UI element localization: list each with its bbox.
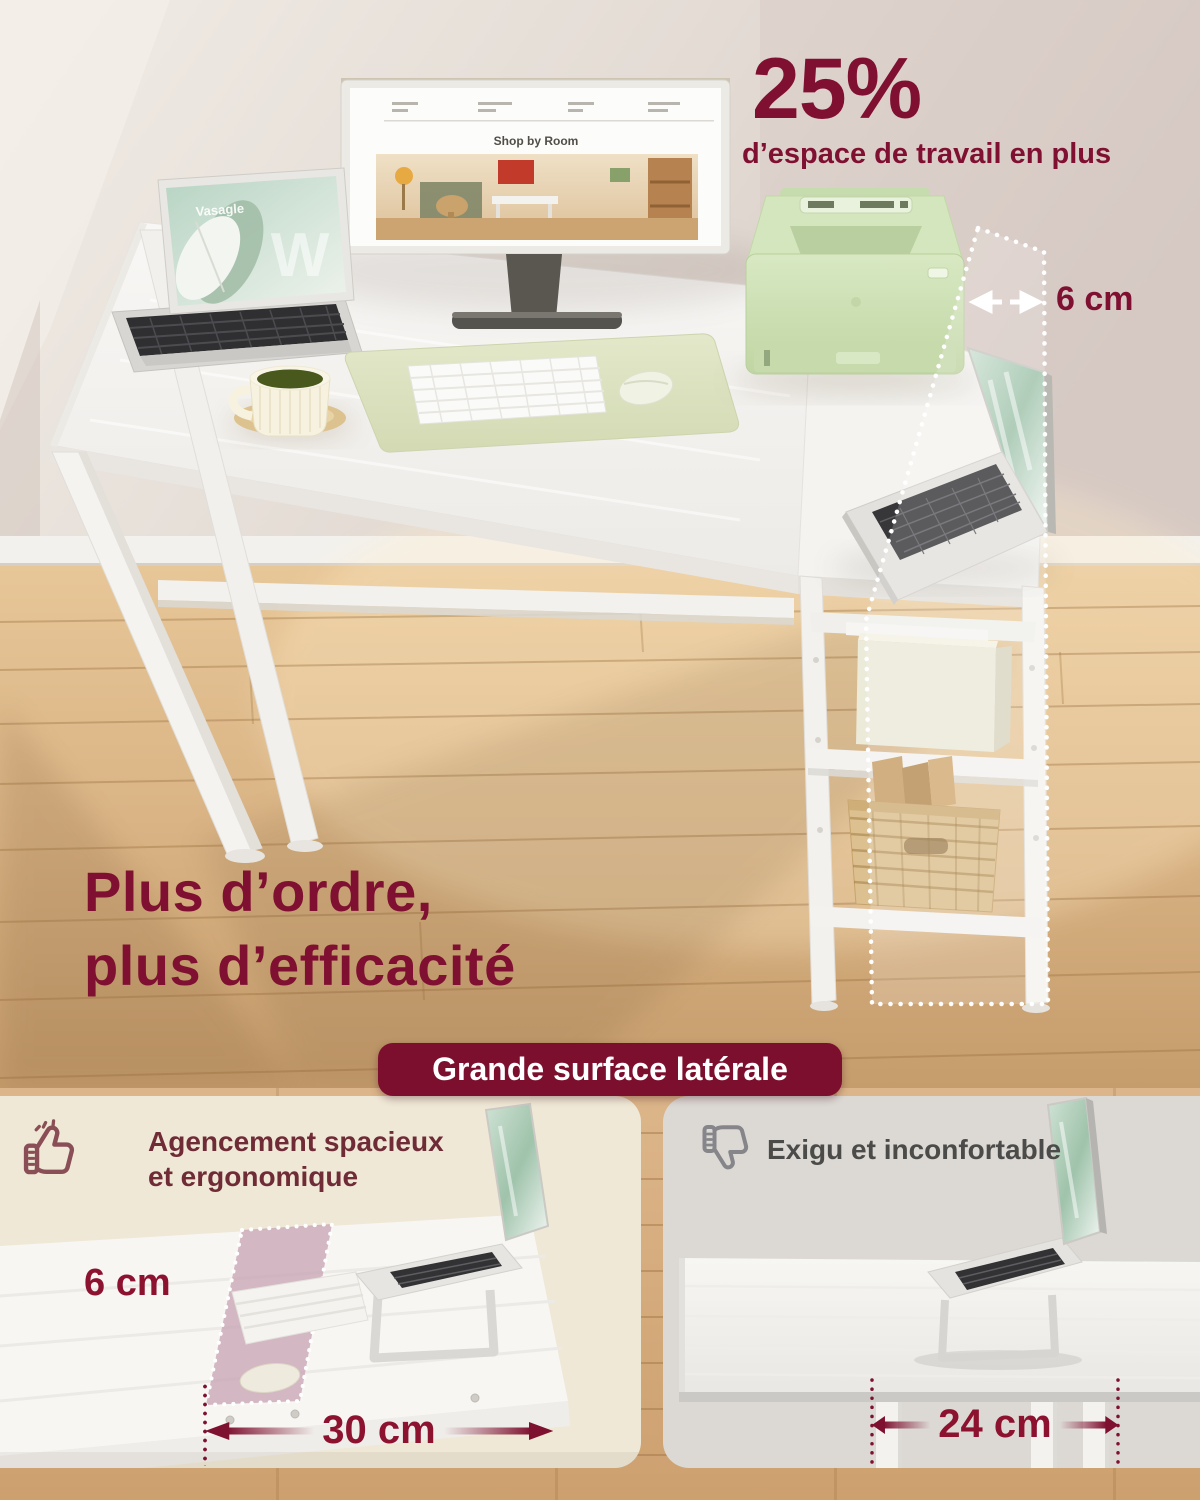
monitor-heading: Shop by Room	[494, 134, 579, 148]
good-depth-label: 6 cm	[84, 1262, 171, 1305]
bad-width-measure: 24 cm	[872, 1402, 1118, 1447]
arrow-left-icon	[205, 1420, 314, 1442]
monitor-stand-neck	[506, 254, 562, 318]
good-panel-label: Agencement spacieux et ergonomique	[148, 1124, 468, 1194]
extension-width-label: 6 cm	[1056, 280, 1134, 319]
arrow-right-icon	[1060, 1414, 1118, 1436]
product-infographic: Shop by Room	[0, 0, 1200, 1500]
good-width-measure: 30 cm	[205, 1408, 553, 1453]
tagline-line2: plus d’efficacité	[84, 938, 516, 994]
arrow-right-icon	[444, 1420, 553, 1442]
headline-caption: d’espace de travail en plus	[742, 138, 1111, 171]
tablet-watermark: W	[271, 221, 330, 290]
thumbs-down-icon	[699, 1118, 759, 1178]
webpage-hero-image	[376, 154, 698, 240]
comparison-panel-good: Agencement spacieux et ergonomique 6 cm …	[0, 1096, 641, 1468]
headline-percent: 25%	[752, 46, 921, 132]
bad-panel-label: Exigu et inconfortable	[767, 1132, 1127, 1167]
keyboard	[408, 356, 606, 424]
monitor: Shop by Room	[300, 78, 780, 329]
bad-width-label: 24 cm	[938, 1402, 1051, 1447]
arrow-left-icon	[872, 1414, 930, 1436]
comparison-panel-bad: Exigu et inconfortable 24 cm	[663, 1096, 1200, 1468]
good-width-label: 30 cm	[322, 1408, 435, 1453]
tagline-line1: Plus d’ordre,	[84, 864, 433, 920]
thumbs-up-icon	[20, 1116, 86, 1182]
section-banner: Grande surface latérale	[378, 1043, 842, 1096]
